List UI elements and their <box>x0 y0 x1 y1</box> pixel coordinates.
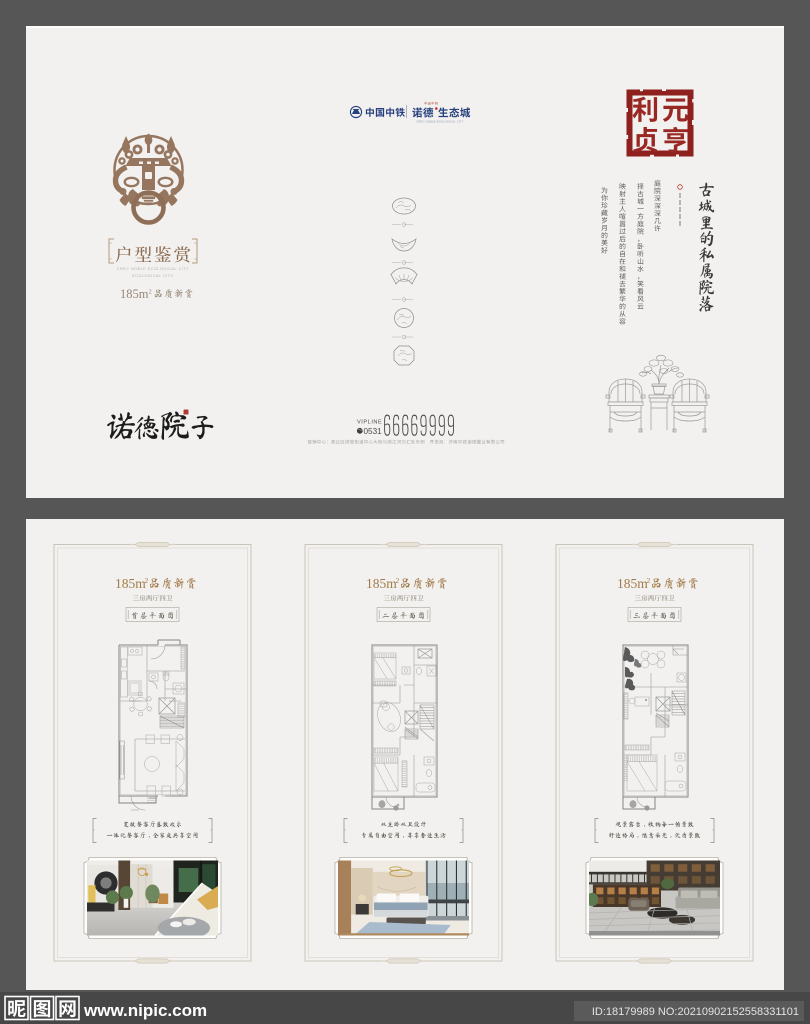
svg-text:185m: 185m <box>617 576 648 591</box>
svg-text:185m: 185m <box>366 576 397 591</box>
svg-text:www.nipic.com: www.nipic.com <box>83 1001 207 1020</box>
svg-text:CREC NOBLE ECOLOGICAL CITY: CREC NOBLE ECOLOGICAL CITY <box>416 120 464 124</box>
svg-text:CREC NOBLE ECOLOGICAL CITY: CREC NOBLE ECOLOGICAL CITY <box>117 267 189 271</box>
svg-text:185m: 185m <box>115 576 146 591</box>
svg-text:ID:18179989 NO:202109021525583: ID:18179989 NO:20210902152558331101 <box>592 1006 799 1018</box>
svg-text:0531: 0531 <box>364 427 383 436</box>
svg-text:ECOLOGICAL CITY: ECOLOGICAL CITY <box>132 274 173 278</box>
svg-text:2: 2 <box>149 289 152 296</box>
svg-text:VIPLINE: VIPLINE <box>357 420 382 426</box>
svg-text:185m: 185m <box>120 287 149 301</box>
svg-text:2: 2 <box>647 576 651 585</box>
svg-text:2: 2 <box>396 576 400 585</box>
svg-text:2: 2 <box>145 576 149 585</box>
